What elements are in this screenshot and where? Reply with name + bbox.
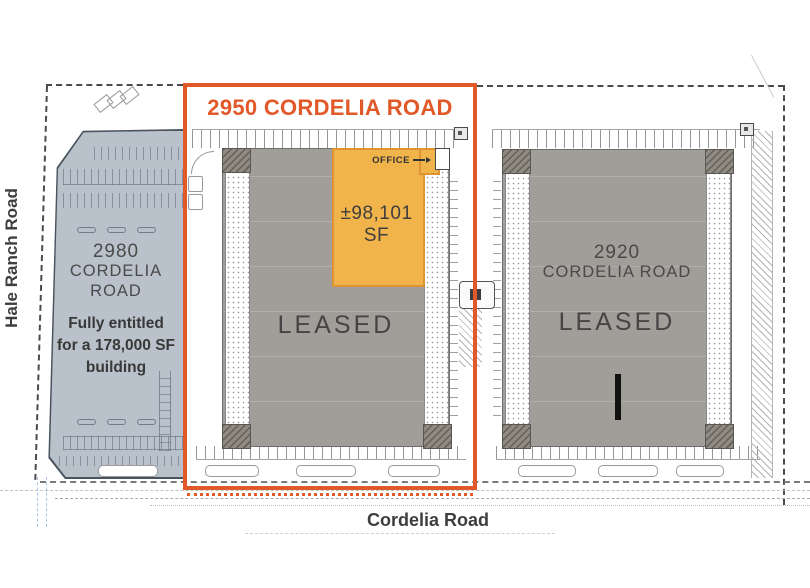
building-2980: 2980 CORDELIA ROAD Fully entitled for a …: [49, 131, 184, 478]
parking-island: [676, 465, 724, 477]
building-2980-note-line1: Fully entitled: [49, 313, 184, 335]
road-centerline: [150, 505, 810, 506]
building-2980-outline: 2980 CORDELIA ROAD Fully entitled for a …: [47, 129, 185, 479]
highlight-dotted-line: [187, 493, 473, 496]
parking-row: [63, 169, 183, 185]
building-2980-note-line2: for a 178,000 SF: [49, 335, 184, 357]
site-plan: 2980 CORDELIA ROAD Fully entitled for a …: [0, 0, 810, 588]
plan-title: 2950 CORDELIA ROAD: [187, 95, 473, 121]
building-2920: 2920 CORDELIA ROAD LEASED: [502, 149, 732, 447]
utility-line-blue: [37, 477, 38, 527]
parking-ticks-top-right: [492, 129, 760, 148]
hatch-strip-right: [751, 131, 773, 478]
parking-island: [98, 465, 158, 477]
parking-row: [63, 436, 183, 450]
building-2980-address-line2: CORDELIA: [49, 262, 184, 281]
road-label-cordelia: Cordelia Road: [318, 510, 538, 531]
speed-bay-left: [505, 171, 530, 425]
utility-line-blue: [46, 477, 47, 527]
hatched-corner: [502, 149, 531, 174]
parking-stall-dashes: [77, 419, 156, 425]
building-2980-address-line1: 2980: [49, 241, 184, 263]
building-2920-address-line2: CORDELIA ROAD: [503, 263, 731, 282]
parking-island: [598, 465, 658, 477]
boundary-right: [783, 85, 785, 505]
highlight-boundary-2950: 2950 CORDELIA ROAD: [183, 83, 477, 490]
boundary-diagonal-mark: [751, 55, 774, 98]
parking-row: [63, 193, 183, 208]
leased-label-2920: LEASED: [529, 308, 705, 337]
road-line: [0, 490, 810, 491]
hatched-corner: [705, 149, 734, 174]
boundary-top-left: [46, 84, 183, 86]
boundary-top-right: [477, 85, 784, 87]
road-label-hale-ranch: Hale Ranch Road: [2, 168, 24, 348]
boundary-left: [34, 86, 48, 480]
hatched-corner: [502, 424, 531, 449]
parking-row: [94, 147, 182, 160]
building-2980-address-line3: ROAD: [49, 282, 184, 301]
speed-bay-right: [706, 171, 731, 425]
parking-island: [518, 465, 576, 477]
utility-box-icon: [740, 123, 754, 136]
hatched-corner: [705, 424, 734, 449]
road-line: [55, 498, 810, 499]
demising-wall-mark: [615, 374, 621, 420]
site-hatch-mark: [119, 86, 139, 105]
road-line-faint: [245, 533, 555, 534]
parking-stall-dashes: [77, 227, 156, 233]
building-2920-address-line1: 2920: [503, 242, 731, 264]
